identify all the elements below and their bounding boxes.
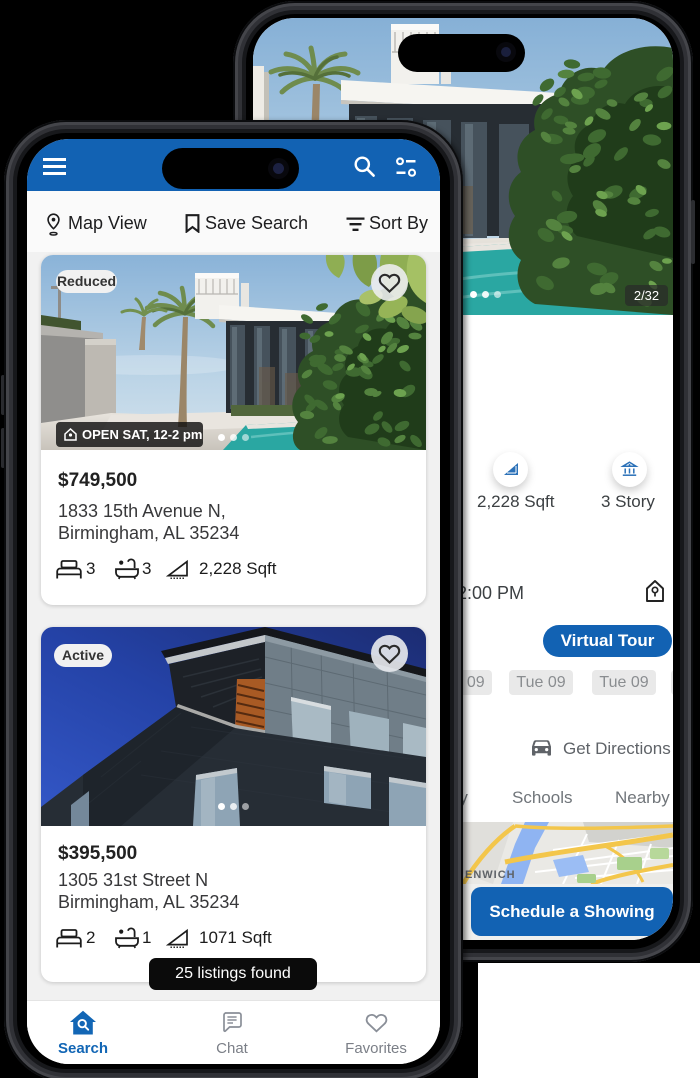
svg-text:ENWICH: ENWICH bbox=[465, 869, 516, 881]
